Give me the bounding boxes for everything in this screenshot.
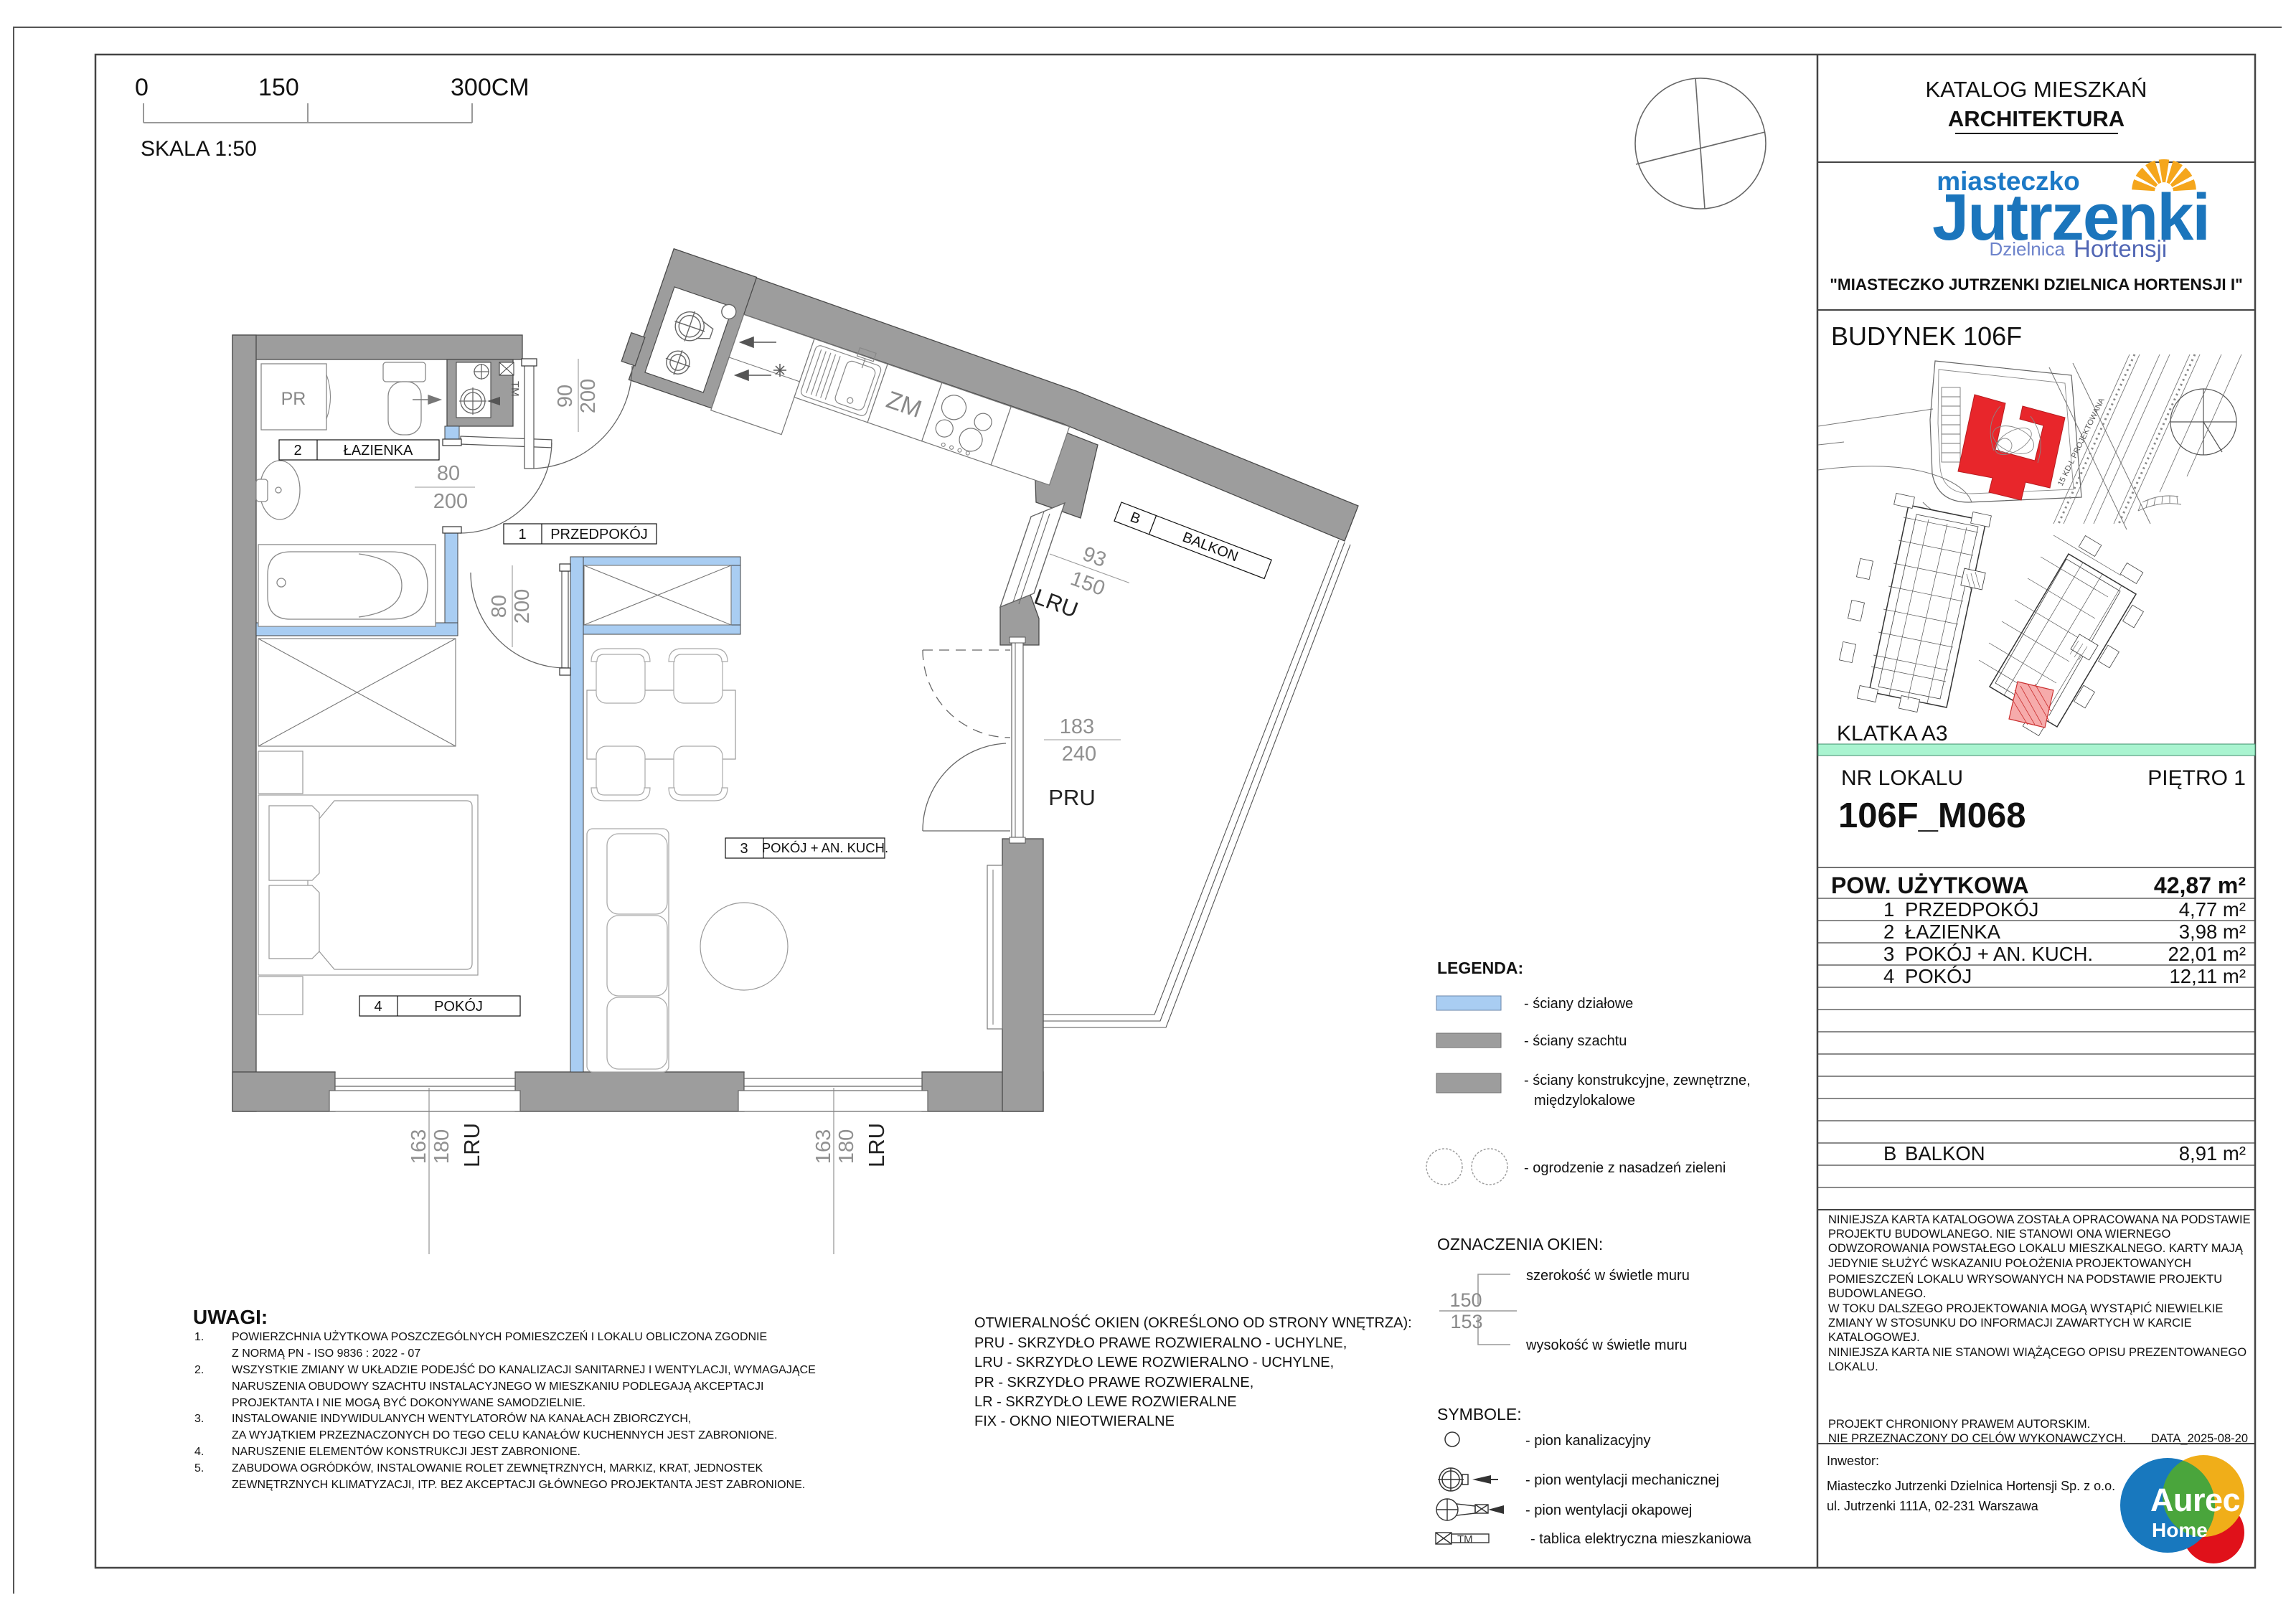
- svg-text:BUDYNEK 106F: BUDYNEK 106F: [1831, 321, 2022, 351]
- svg-text:POKÓJ + AN. KUCH.: POKÓJ + AN. KUCH.: [1905, 943, 2093, 965]
- svg-text:ZEWNĘTRZNYCH KLIMATYZACJI, IT: ZEWNĘTRZNYCH KLIMATYZACJI, ITP. BEZ AKCE…: [232, 1477, 805, 1491]
- svg-text:4: 4: [374, 999, 382, 1015]
- svg-text:0: 0: [135, 74, 149, 101]
- svg-text:22,01 m²: 22,01 m²: [2168, 943, 2246, 965]
- svg-text:200: 200: [577, 379, 600, 413]
- svg-text:Inwestor:: Inwestor:: [1827, 1454, 1879, 1468]
- svg-text:1.: 1.: [194, 1331, 204, 1343]
- svg-text:- ściany konstrukcyjne, zewnęt: - ściany konstrukcyjne, zewnętrzne,: [1524, 1073, 1751, 1088]
- svg-text:KATALOGOWEJ.: KATALOGOWEJ.: [1828, 1331, 1920, 1344]
- svg-text:ZMIANY W STOSUNKU DO INFORMACJ: ZMIANY W STOSUNKU DO INFORMACJI ZAWARTYC…: [1828, 1317, 2192, 1330]
- svg-text:300CM: 300CM: [451, 74, 530, 101]
- svg-text:80: 80: [488, 595, 511, 618]
- svg-text:OZNACZENIA OKIEN:: OZNACZENIA OKIEN:: [1437, 1235, 1603, 1253]
- svg-text:NARUSZENIA OBUDOWY SZACHTU INS: NARUSZENIA OBUDOWY SZACHTU INSTALACYJNEG…: [232, 1380, 763, 1393]
- svg-text:LRU: LRU: [864, 1123, 889, 1167]
- svg-text:FIX - OKNO NIEOTWIERALNE: FIX - OKNO NIEOTWIERALNE: [974, 1413, 1175, 1429]
- svg-text:POW. UŻYTKOWA: POW. UŻYTKOWA: [1831, 872, 2029, 898]
- svg-text:ZA WYJĄTKIEM PRZEZNACZONYCH DO: ZA WYJĄTKIEM PRZEZNACZONYCH DO TEGO CELU…: [232, 1428, 777, 1441]
- svg-text:180: 180: [430, 1129, 453, 1164]
- svg-text:3: 3: [1883, 943, 1894, 965]
- svg-text:LRU: LRU: [459, 1123, 484, 1167]
- svg-text:240: 240: [1062, 743, 1096, 766]
- svg-text:LOKALU.: LOKALU.: [1828, 1360, 1878, 1373]
- svg-text:Dzielnica: Dzielnica: [1990, 238, 2066, 260]
- svg-text:ODWZOROWANIA POWSTAŁEGO LOKALU: ODWZOROWANIA POWSTAŁEGO LOKALU MIESZKALN…: [1828, 1242, 2244, 1255]
- svg-text:SYMBOLE:: SYMBOLE:: [1437, 1405, 1522, 1424]
- svg-text:153: 153: [1450, 1311, 1482, 1332]
- svg-text:200: 200: [433, 490, 468, 513]
- svg-text:"MIASTECZKO JUTRZENKI DZIELNIC: "MIASTECZKO JUTRZENKI DZIELNICA HORTENSJ…: [1830, 276, 2243, 293]
- svg-text:PROJEKT CHRONIONY PRAWEM AUTOR: PROJEKT CHRONIONY PRAWEM AUTORSKIM.: [1828, 1418, 2090, 1431]
- svg-text:PIĘTRO 1: PIĘTRO 1: [2147, 766, 2246, 790]
- svg-text:PRZEDPOKÓJ: PRZEDPOKÓJ: [1905, 898, 2038, 921]
- svg-text:163: 163: [812, 1129, 835, 1164]
- svg-text:1: 1: [518, 527, 526, 542]
- svg-text:12,11 m²: 12,11 m²: [2170, 965, 2246, 987]
- svg-text:2: 2: [1883, 921, 1894, 943]
- svg-text:Jutrzenki: Jutrzenki: [1932, 181, 2209, 254]
- svg-text:- pion kanalizacyjny: - pion kanalizacyjny: [1525, 1433, 1651, 1449]
- svg-text:ŁAZIENKA: ŁAZIENKA: [1905, 921, 2001, 943]
- svg-text:INSTALOWANIE INDYWIDULANYCH WE: INSTALOWANIE INDYWIDULANYCH WENTYLATORÓW…: [232, 1411, 691, 1425]
- svg-text:NINIEJSZA KARTA KATALOGOWA ZOS: NINIEJSZA KARTA KATALOGOWA ZOSTAŁA OPRAC…: [1828, 1213, 2251, 1226]
- svg-text:80: 80: [437, 462, 460, 485]
- svg-text:PROJEKTANTA I NIE MOGĄ BYĆ DOK: PROJEKTANTA I NIE MOGĄ BYĆ DOKONYWANE SA…: [232, 1396, 585, 1409]
- svg-text:NARUSZENIE ELEMENTÓW KONSTRUKC: NARUSZENIE ELEMENTÓW KONSTRUKCJI JEST ZA…: [232, 1444, 580, 1458]
- svg-text:4,77 m²: 4,77 m²: [2179, 898, 2246, 921]
- svg-text:POKÓJ: POKÓJ: [434, 998, 483, 1015]
- svg-text:Aurec: Aurec: [2150, 1482, 2240, 1518]
- svg-text:2: 2: [293, 443, 301, 458]
- svg-text:PR: PR: [281, 389, 306, 409]
- svg-text:- ściany działowe: - ściany działowe: [1524, 996, 1633, 1012]
- svg-text:5.: 5.: [194, 1462, 204, 1474]
- svg-text:NINIEJSZA KARTA NIE STANOWI WI: NINIEJSZA KARTA NIE STANOWI WIĄŻĄCEGO OP…: [1828, 1345, 2246, 1359]
- svg-text:- ściany szachtu: - ściany szachtu: [1524, 1033, 1627, 1049]
- svg-text:LRU - SKRZYDŁO LEWE ROZWIERALN: LRU - SKRZYDŁO LEWE ROZWIERALNO - UCHYLN…: [974, 1355, 1334, 1370]
- svg-text:163: 163: [408, 1129, 430, 1164]
- svg-text:1: 1: [1883, 898, 1894, 921]
- svg-text:3,98 m²: 3,98 m²: [2179, 921, 2246, 943]
- svg-text:Home: Home: [2152, 1519, 2208, 1541]
- svg-text:PRZEDPOKÓJ: PRZEDPOKÓJ: [550, 526, 648, 542]
- svg-text:ul. Jutrzenki 111A, 02-231 War: ul. Jutrzenki 111A, 02-231 Warszawa: [1827, 1499, 2039, 1513]
- svg-text:2.: 2.: [194, 1364, 204, 1376]
- svg-text:POKÓJ + AN. KUCH.: POKÓJ + AN. KUCH.: [762, 840, 888, 855]
- svg-text:wysokość w świetle muru: wysokość w świetle muru: [1525, 1337, 1688, 1353]
- svg-text:PRU - SKRZYDŁO PRAWE ROZWIERAL: PRU - SKRZYDŁO PRAWE ROZWIERALNO - UCHYL…: [974, 1335, 1347, 1351]
- svg-text:Z NORMĄ PN - ISO 9836 : 2022 -: Z NORMĄ PN - ISO 9836 : 2022 - 07: [232, 1347, 420, 1360]
- svg-text:150: 150: [258, 74, 299, 101]
- svg-text:ARCHITEKTURA: ARCHITEKTURA: [1948, 106, 2125, 131]
- svg-text:ZABUDOWA OGRÓDKÓW, INSTALOWANI: ZABUDOWA OGRÓDKÓW, INSTALOWANIE ROLET ZE…: [232, 1461, 763, 1474]
- svg-text:WSZYSTKIE ZMIANY W UKŁADZIE PO: WSZYSTKIE ZMIANY W UKŁADZIE PODEJŚĆ DO K…: [232, 1363, 816, 1376]
- svg-text:NR LOKALU: NR LOKALU: [1841, 766, 1963, 790]
- svg-text:PROJEKTU BUDOWLANEGO. NIE STAN: PROJEKTU BUDOWLANEGO. NIE STANOWI ONA WI…: [1828, 1228, 2170, 1241]
- svg-text:KATALOG MIESZKAŃ: KATALOG MIESZKAŃ: [1926, 77, 2147, 102]
- svg-text:4: 4: [1883, 965, 1894, 987]
- svg-text:PRU: PRU: [1048, 785, 1095, 810]
- svg-text:8,91 m²: 8,91 m²: [2179, 1142, 2246, 1165]
- svg-text:3.: 3.: [194, 1413, 204, 1425]
- svg-text:OTWIERALNOŚĆ OKIEN (OKREŚLONO: OTWIERALNOŚĆ OKIEN (OKREŚLONO OD STRONY …: [974, 1314, 1412, 1331]
- svg-text:TM: TM: [1457, 1533, 1473, 1546]
- svg-text:3: 3: [740, 841, 748, 857]
- svg-text:- pion wentylacji okapowej: - pion wentylacji okapowej: [1525, 1502, 1692, 1518]
- svg-text:W TOKU DALSZEGO PROJEKTOWANIA: W TOKU DALSZEGO PROJEKTOWANIA MOGĄ WYSTĄ…: [1828, 1302, 2223, 1315]
- svg-text:JEDYNIE SŁUŻYĆ WSKAZANIU POŁOŻ: JEDYNIE SŁUŻYĆ WSKAZANIU POŁOŻENIA PROJE…: [1828, 1256, 2191, 1270]
- svg-text:180: 180: [835, 1129, 858, 1164]
- svg-text:PR - SKRZYDŁO PRAWE ROZWIERALN: PR - SKRZYDŁO PRAWE ROZWIERALNE,: [974, 1375, 1253, 1391]
- svg-text:POKÓJ: POKÓJ: [1905, 965, 1972, 987]
- svg-text:KLATKA A3: KLATKA A3: [1837, 722, 1948, 745]
- svg-text:SKALA 1:50: SKALA 1:50: [141, 137, 257, 161]
- svg-text:POWIERZCHNIA UŻYTKOWA POSZCZEG: POWIERZCHNIA UŻYTKOWA POSZCZEGÓLNYCH POM…: [232, 1330, 767, 1343]
- svg-text:200: 200: [511, 589, 534, 624]
- svg-text:4.: 4.: [194, 1446, 204, 1458]
- svg-text:BUDOWLANEGO.: BUDOWLANEGO.: [1828, 1287, 1926, 1300]
- svg-text:- ogrodzenie z nasadzeń zielen: - ogrodzenie z nasadzeń zieleni: [1524, 1160, 1726, 1176]
- svg-text:szerokość w świetle muru: szerokość w świetle muru: [1526, 1268, 1690, 1284]
- svg-text:Hortensji: Hortensji: [2074, 235, 2167, 262]
- svg-text:42,87 m²: 42,87 m²: [2154, 872, 2246, 898]
- svg-text:LR - SKRZYDŁO LEWE ROZWIERALNE: LR - SKRZYDŁO LEWE ROZWIERALNE: [974, 1394, 1237, 1410]
- svg-text:150: 150: [1449, 1289, 1482, 1311]
- svg-text:90: 90: [554, 385, 577, 408]
- svg-text:B: B: [1883, 1142, 1896, 1165]
- svg-text:międzylokalowe: międzylokalowe: [1534, 1093, 1635, 1109]
- svg-text:183: 183: [1060, 715, 1094, 738]
- svg-text:- tablica elektryczna mieszkan: - tablica elektryczna mieszkaniowa: [1530, 1531, 1752, 1547]
- svg-text:BALKON: BALKON: [1905, 1142, 1985, 1165]
- svg-text:- pion wentylacji mechanicznej: - pion wentylacji mechanicznej: [1525, 1472, 1719, 1488]
- svg-text:LEGENDA:: LEGENDA:: [1437, 959, 1523, 977]
- svg-text:Miasteczko Jutrzenki Dzielnica: Miasteczko Jutrzenki Dzielnica Hortensji…: [1827, 1479, 2115, 1493]
- svg-text:TM: TM: [509, 381, 521, 397]
- svg-text:106F_M068: 106F_M068: [1838, 796, 2026, 835]
- svg-text:ŁAZIENKA: ŁAZIENKA: [344, 443, 413, 458]
- svg-text:POMIESZCZEŃ LOKALU WRYSOWANYCH: POMIESZCZEŃ LOKALU WRYSOWANYCH NA PODSTA…: [1828, 1272, 2222, 1286]
- svg-text:UWAGI:: UWAGI:: [193, 1306, 268, 1328]
